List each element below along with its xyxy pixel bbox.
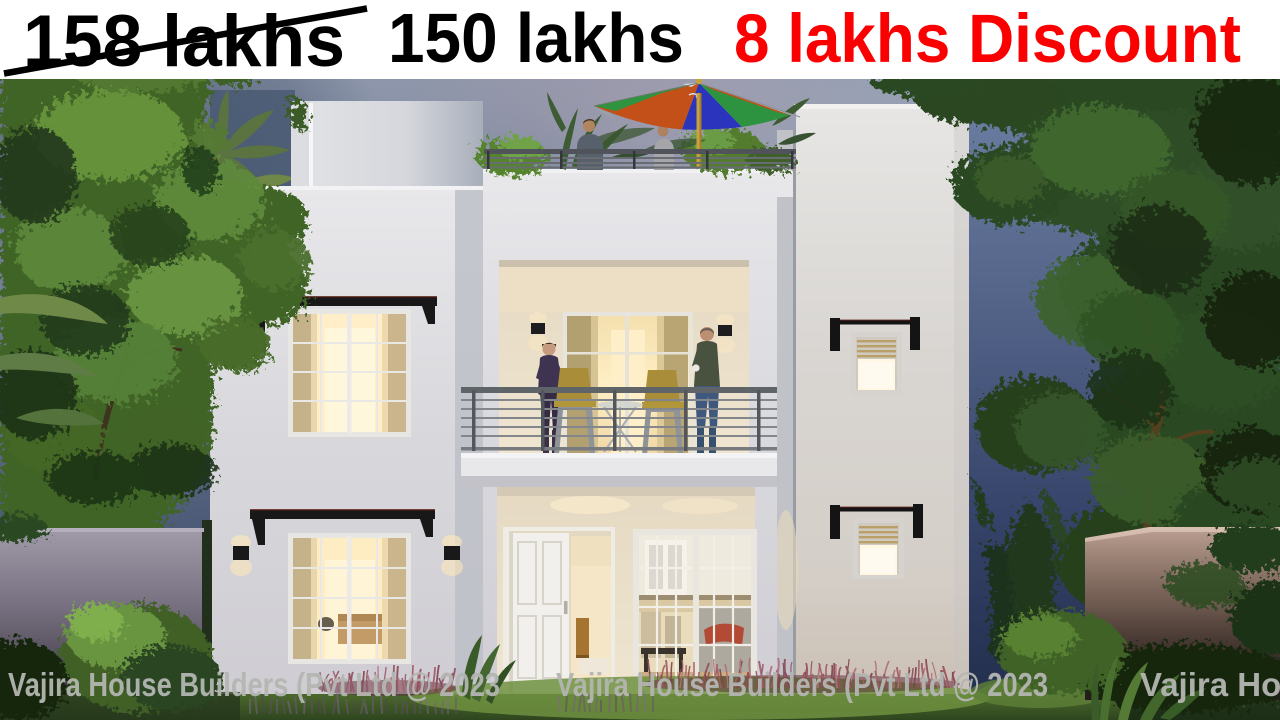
- svg-text:8 lakhs Discount: 8 lakhs Discount: [734, 0, 1241, 77]
- svg-text:150 lakhs: 150 lakhs: [388, 0, 684, 77]
- svg-text:Vajira House B: Vajira House B: [1140, 666, 1280, 703]
- svg-text:Vajira House Builders (Pvt Ltd: Vajira House Builders (Pvt Ltd @ 2023: [8, 666, 500, 703]
- svg-text:Vajira House Builders (Pvt Ltd: Vajira House Builders (Pvt Ltd @ 2023: [556, 666, 1048, 703]
